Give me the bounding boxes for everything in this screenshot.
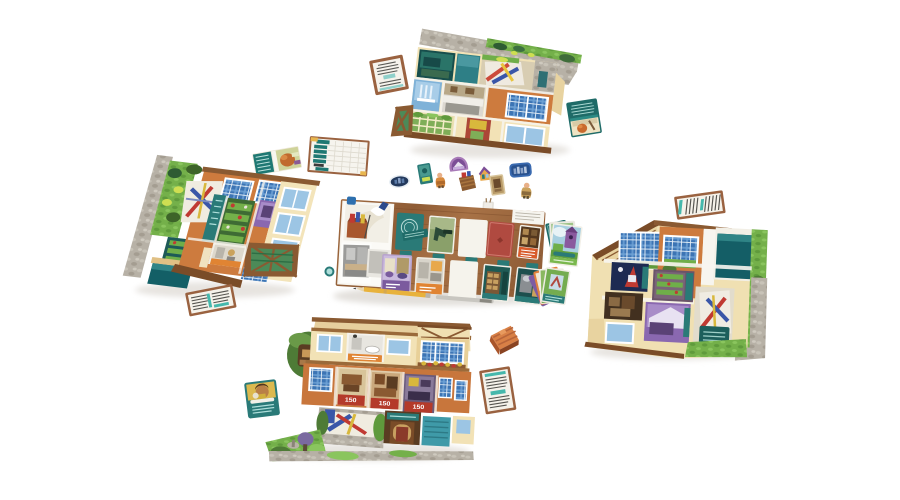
svg-text:150: 150: [379, 400, 391, 407]
svg-text:150: 150: [412, 404, 424, 411]
svg-text:150: 150: [345, 397, 357, 404]
